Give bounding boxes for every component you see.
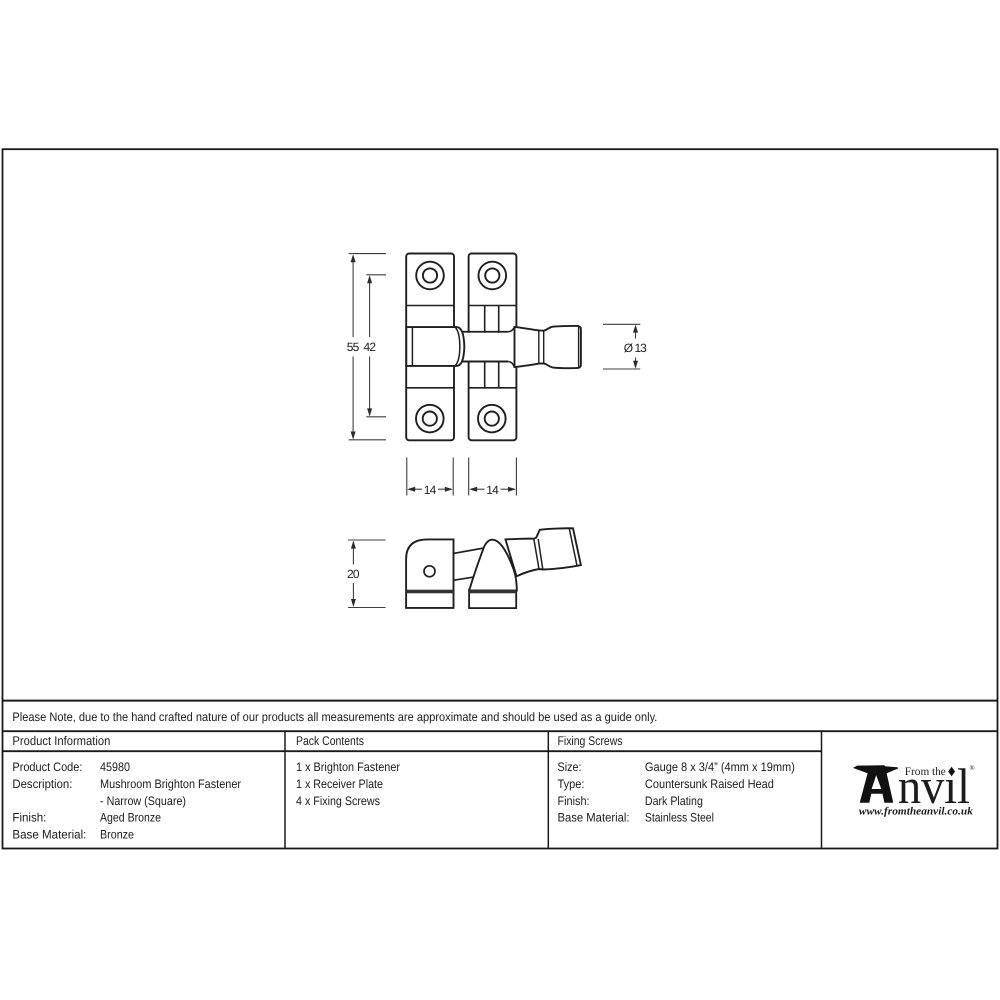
svg-text:Stainless Steel: Stainless Steel: [645, 811, 714, 825]
svg-text:Type:: Type:: [558, 777, 585, 791]
svg-text:Dark Plating: Dark Plating: [645, 794, 703, 808]
svg-text:14: 14: [424, 483, 437, 497]
svg-text:Mushroom Brighton Fastener: Mushroom Brighton Fastener: [100, 777, 241, 791]
svg-text:4 x Fixing Screws: 4 x Fixing Screws: [296, 794, 380, 808]
svg-text:Finish:: Finish:: [12, 811, 46, 825]
svg-text:Bronze: Bronze: [100, 828, 134, 842]
svg-text:Product Code:: Product Code:: [12, 760, 82, 774]
svg-text:www.fromtheanvil.co.uk: www.fromtheanvil.co.uk: [859, 806, 974, 818]
svg-text:20: 20: [347, 567, 360, 581]
svg-text:14: 14: [486, 483, 499, 497]
svg-text:Aged Bronze: Aged Bronze: [100, 811, 161, 825]
svg-text:Description:: Description:: [12, 777, 72, 791]
svg-text:1 x Receiver Plate: 1 x Receiver Plate: [296, 777, 383, 791]
svg-text:Gauge 8 x 3/4” (4mm x 19mm): Gauge 8 x 3/4” (4mm x 19mm): [645, 760, 795, 774]
svg-text:Pack Contents: Pack Contents: [296, 734, 364, 748]
svg-text:Ø 13: Ø 13: [624, 341, 647, 355]
svg-text:Finish:: Finish:: [558, 794, 590, 808]
svg-text:Size:: Size:: [558, 760, 582, 774]
svg-text:- Narrow (Square): - Narrow (Square): [100, 794, 186, 808]
svg-text:1 x Brighton Fastener: 1 x Brighton Fastener: [296, 760, 400, 774]
svg-text:45980: 45980: [100, 760, 130, 774]
svg-text:Please Note, due to the hand c: Please Note, due to the hand crafted nat…: [12, 710, 657, 724]
svg-text:42: 42: [364, 340, 377, 354]
svg-text:Product Information: Product Information: [12, 734, 110, 748]
svg-text:55: 55: [347, 340, 360, 354]
svg-text:®: ®: [970, 764, 976, 772]
svg-text:Countersunk Raised Head: Countersunk Raised Head: [645, 777, 774, 791]
svg-text:Base Material:: Base Material:: [12, 828, 86, 842]
svg-text:Fixing Screws: Fixing Screws: [558, 734, 623, 748]
svg-text:Base Material:: Base Material:: [558, 811, 630, 825]
svg-text:From the: From the: [905, 766, 946, 778]
